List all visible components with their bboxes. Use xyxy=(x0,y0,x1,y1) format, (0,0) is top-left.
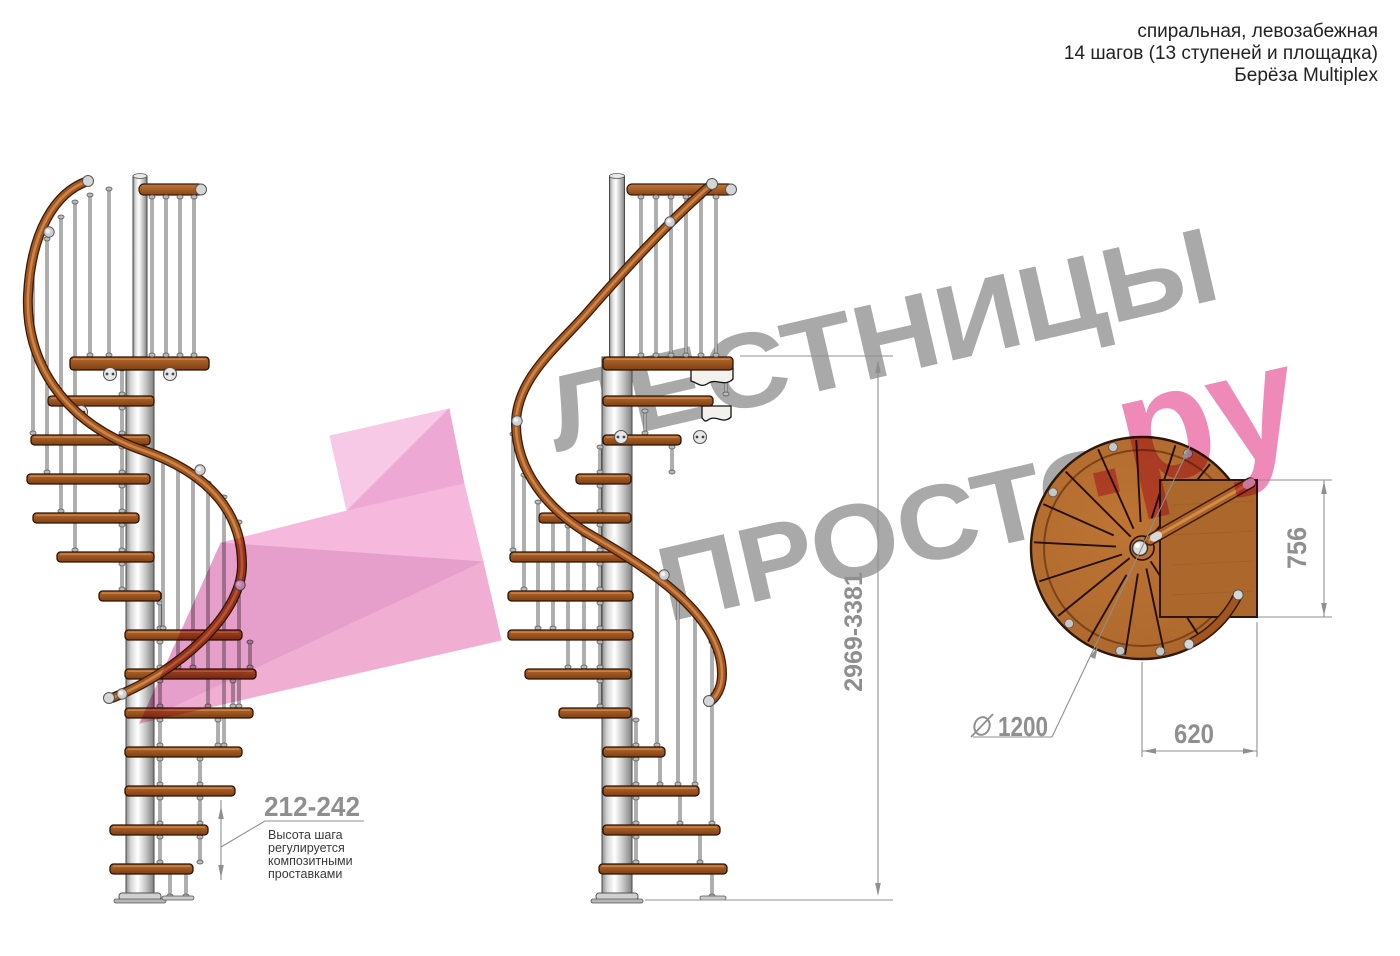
svg-text:композитными: композитными xyxy=(268,854,353,868)
svg-text:212-242: 212-242 xyxy=(264,791,360,822)
svg-text:2969-3381: 2969-3381 xyxy=(840,572,868,692)
svg-text:регулируется: регулируется xyxy=(268,841,345,855)
svg-text:проставками: проставками xyxy=(268,867,342,881)
svg-text:756: 756 xyxy=(1282,527,1312,569)
svg-text:1200: 1200 xyxy=(998,711,1048,742)
svg-text:Высота шага: Высота шага xyxy=(268,828,343,842)
svg-text:спиральная, левозабежная: спиральная, левозабежная xyxy=(1137,21,1378,42)
svg-text:620: 620 xyxy=(1174,719,1214,749)
svg-text:Берёза Multiplex: Берёза Multiplex xyxy=(1234,65,1378,86)
svg-text:14 шагов (13 ступеней и площад: 14 шагов (13 ступеней и площадка) xyxy=(1064,43,1378,64)
